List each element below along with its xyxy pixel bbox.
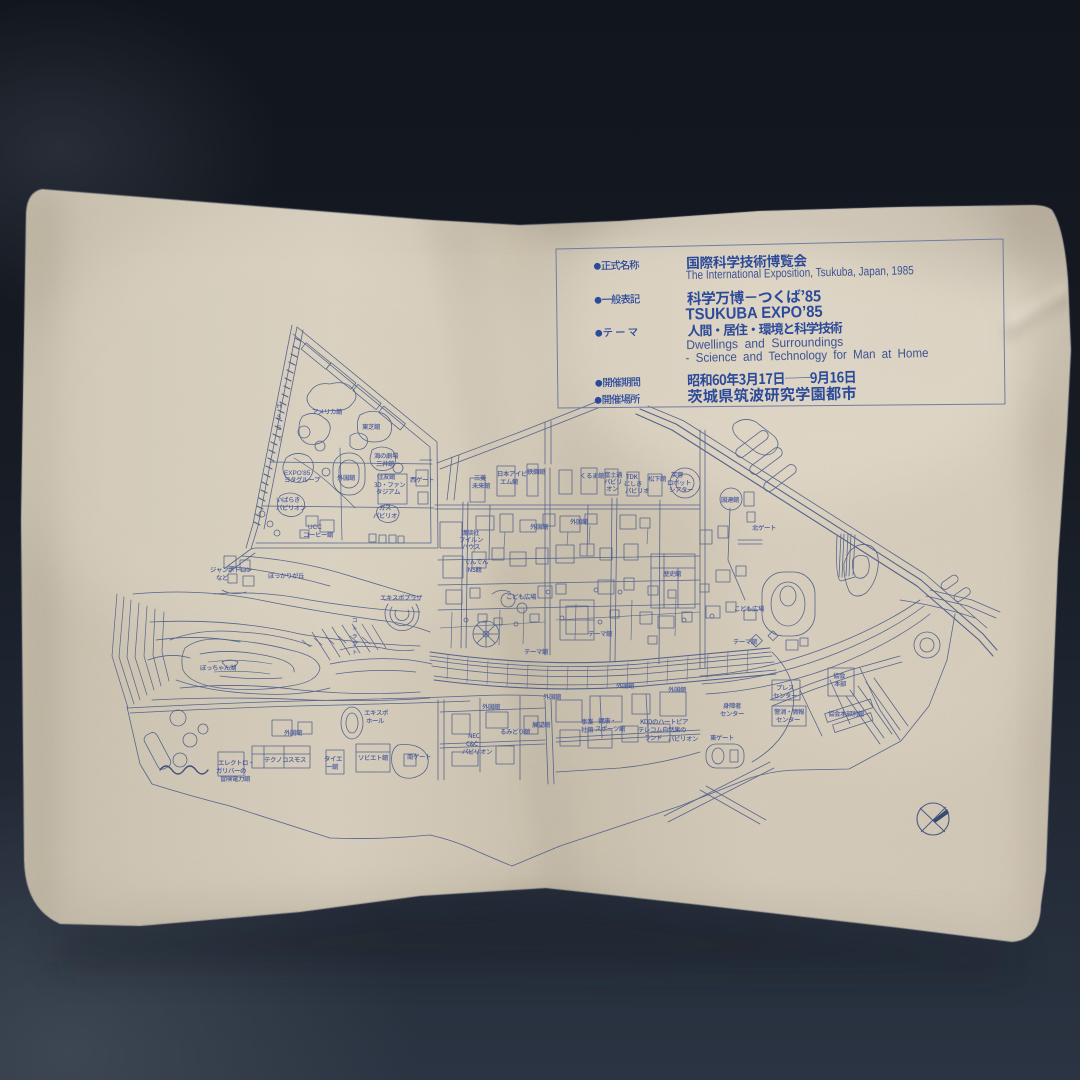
svg-text:T: T (278, 436, 282, 443)
svg-text:EXPO’85: EXPO’85 (284, 470, 311, 477)
svg-text:H: H (277, 403, 282, 410)
svg-text:TSUKUBA EXPO’85: TSUKUBA EXPO’85 (685, 303, 822, 324)
svg-text:UCC: UCC (308, 524, 322, 531)
svg-text:S: S (277, 414, 281, 421)
svg-text:S: S (277, 425, 281, 432)
